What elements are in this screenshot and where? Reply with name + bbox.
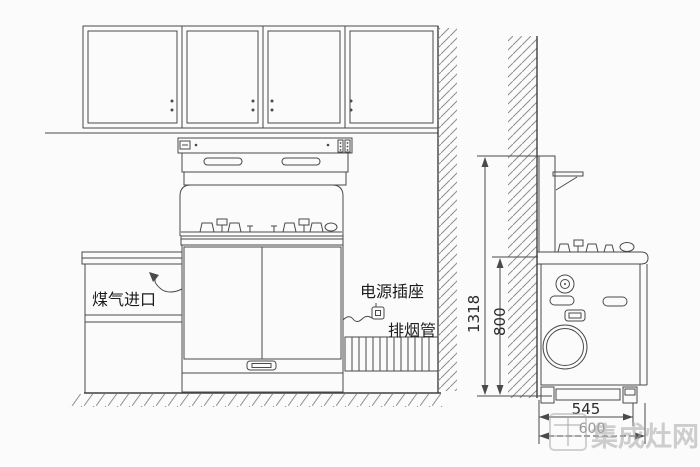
base-drawer	[556, 389, 620, 400]
power-cord	[343, 316, 372, 321]
burner-left	[200, 219, 241, 232]
stove-door-handle	[247, 361, 276, 370]
stove-base	[182, 245, 343, 392]
burner-right	[283, 219, 337, 232]
side-burners	[558, 240, 634, 252]
exhaust-pipe-label: 排烟管	[388, 322, 436, 340]
gas-inlet: 煤气进口	[92, 272, 182, 309]
vent-handle	[550, 296, 574, 305]
hood-inlet-lip	[553, 172, 583, 190]
duct-ribs	[352, 337, 429, 371]
side-stove-body	[541, 264, 647, 403]
pan-support	[271, 226, 277, 232]
vent-handle	[603, 297, 627, 306]
gas-pipe-arrow	[149, 272, 159, 282]
base-cabinet	[82, 252, 182, 393]
wall-hatch	[438, 28, 457, 391]
diagram-canvas: 煤气进口 电源插座 排烟管	[0, 0, 700, 467]
exhaust-duct: 排烟管	[345, 322, 438, 371]
front-wall	[438, 26, 457, 393]
gas-pipe	[155, 277, 182, 292]
cabinet-door	[268, 31, 340, 123]
kitchen-installation-diagram: 煤气进口 电源插座 排烟管	[0, 0, 700, 467]
cabinet-door	[350, 31, 433, 123]
side-wall	[508, 36, 537, 398]
foot	[541, 387, 554, 403]
range-hood	[178, 138, 352, 185]
flue-riser	[539, 156, 583, 252]
small-handle	[565, 310, 585, 321]
hood-vent-slot	[282, 158, 320, 165]
cabinet-door	[187, 31, 258, 123]
power-socket: 电源插座	[343, 283, 424, 322]
dimension-800-text: 800	[491, 307, 509, 336]
cabinet-handles	[171, 100, 353, 112]
hood-buttons	[338, 140, 350, 152]
dimension-1318-text: 1318	[465, 295, 483, 333]
watermark-text: 集成灶网	[590, 421, 699, 452]
power-socket-label: 电源插座	[360, 283, 424, 301]
side-cooktop	[537, 240, 648, 264]
control-knob	[556, 275, 574, 293]
cooktop	[180, 185, 343, 245]
upper-cabinets	[45, 26, 438, 133]
hood-vent-slot	[204, 158, 242, 165]
cabinet-door	[88, 31, 177, 123]
floor	[70, 393, 444, 407]
gas-inlet-label: 煤气进口	[92, 291, 156, 309]
pan-support	[247, 226, 253, 232]
round-window	[543, 325, 587, 369]
power-plug-icon	[372, 303, 384, 319]
floor-hatch	[70, 394, 444, 407]
wall-hatch	[508, 36, 537, 398]
